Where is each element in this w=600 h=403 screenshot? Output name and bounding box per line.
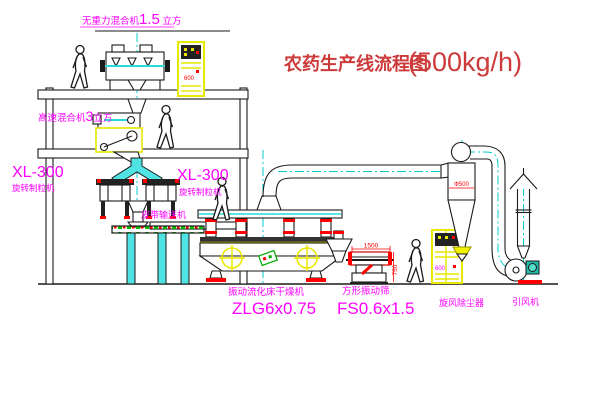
label-gravity-free-mixer: 无重力混合机1.5 立方 bbox=[80, 11, 182, 28]
svg-text:750: 750 bbox=[392, 264, 399, 275]
vibrating-screen-machine: 1500 750 bbox=[326, 231, 399, 284]
worker-figure-mixer-floor bbox=[157, 106, 174, 149]
label-granulator-left-name: 旋转制粒机 bbox=[12, 183, 55, 193]
svg-text:1500: 1500 bbox=[364, 243, 379, 250]
cabinet1-mark: 600 bbox=[184, 76, 195, 82]
diagram-svg: 600 bbox=[0, 0, 600, 403]
cabinet2-mark: 600 bbox=[435, 266, 446, 272]
svg-text:Φ500: Φ500 bbox=[454, 182, 469, 188]
belt-conveyor-machine bbox=[112, 226, 204, 284]
label-granulator-right-model: XL-300 bbox=[177, 167, 229, 184]
label-screen-model: FS0.6x1.5 bbox=[337, 299, 415, 318]
label-granulator-right-name: 旋转制粒机 bbox=[179, 187, 222, 197]
diagram-title-capacity: (500kg/h) bbox=[408, 47, 522, 77]
label-belt-conveyor: 皮带输送机 bbox=[141, 209, 186, 220]
worker-figure-ground bbox=[407, 240, 424, 283]
screen-dimension-750: 750 bbox=[392, 252, 399, 282]
granulator-left-machine bbox=[96, 179, 134, 219]
screen-dimension-1500: 1500 bbox=[352, 243, 390, 253]
label-cyclone: 旋风除尘器 bbox=[439, 297, 484, 308]
label-dryer-model: ZLG6x0.75 bbox=[232, 299, 316, 318]
cyclone-to-fan-duct bbox=[468, 146, 523, 278]
draft-fan-machine bbox=[505, 259, 542, 284]
diagram-title: 农药生产线流程图 bbox=[283, 53, 428, 74]
label-draft-fan: 引风机 bbox=[512, 296, 539, 307]
svg-text:无重力混合机1.5 立方: 无重力混合机1.5 立方 bbox=[82, 11, 182, 28]
flow-diagram-canvas: 600 bbox=[0, 0, 600, 403]
label-dryer-name: 振动流化床干燥机 bbox=[228, 286, 305, 298]
control-cabinet-top: 600 bbox=[178, 42, 204, 96]
label-granulator-left-model: XL-300 bbox=[12, 164, 64, 181]
worker-figure-top-floor bbox=[71, 46, 88, 89]
high-speed-mixer bbox=[93, 99, 146, 162]
dryer-exhaust-duct bbox=[198, 163, 449, 218]
label-screen-name: 方形振动筛 bbox=[342, 285, 390, 297]
gravity-free-mixer bbox=[100, 45, 170, 90]
